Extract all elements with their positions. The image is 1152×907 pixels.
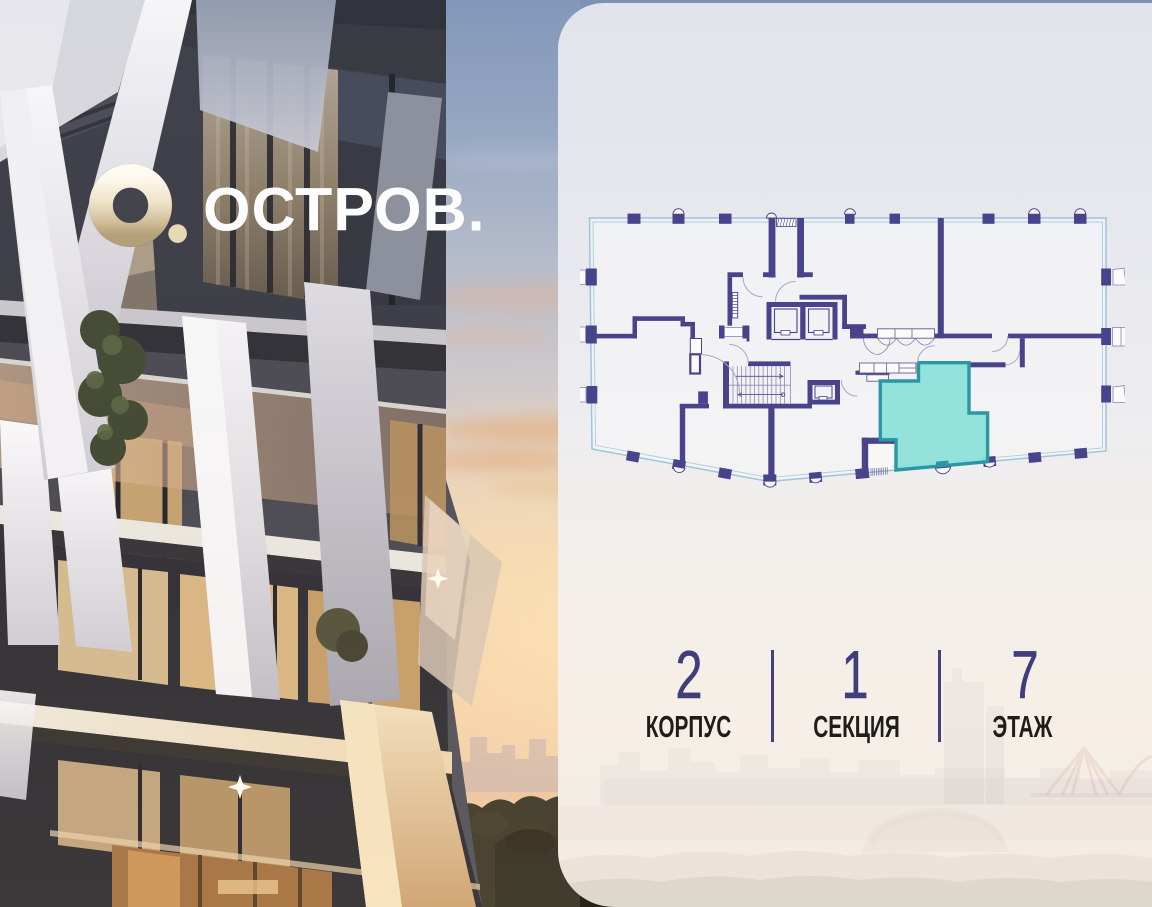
svg-text:ОСТРОВ.: ОСТРОВ. — [203, 176, 486, 244]
